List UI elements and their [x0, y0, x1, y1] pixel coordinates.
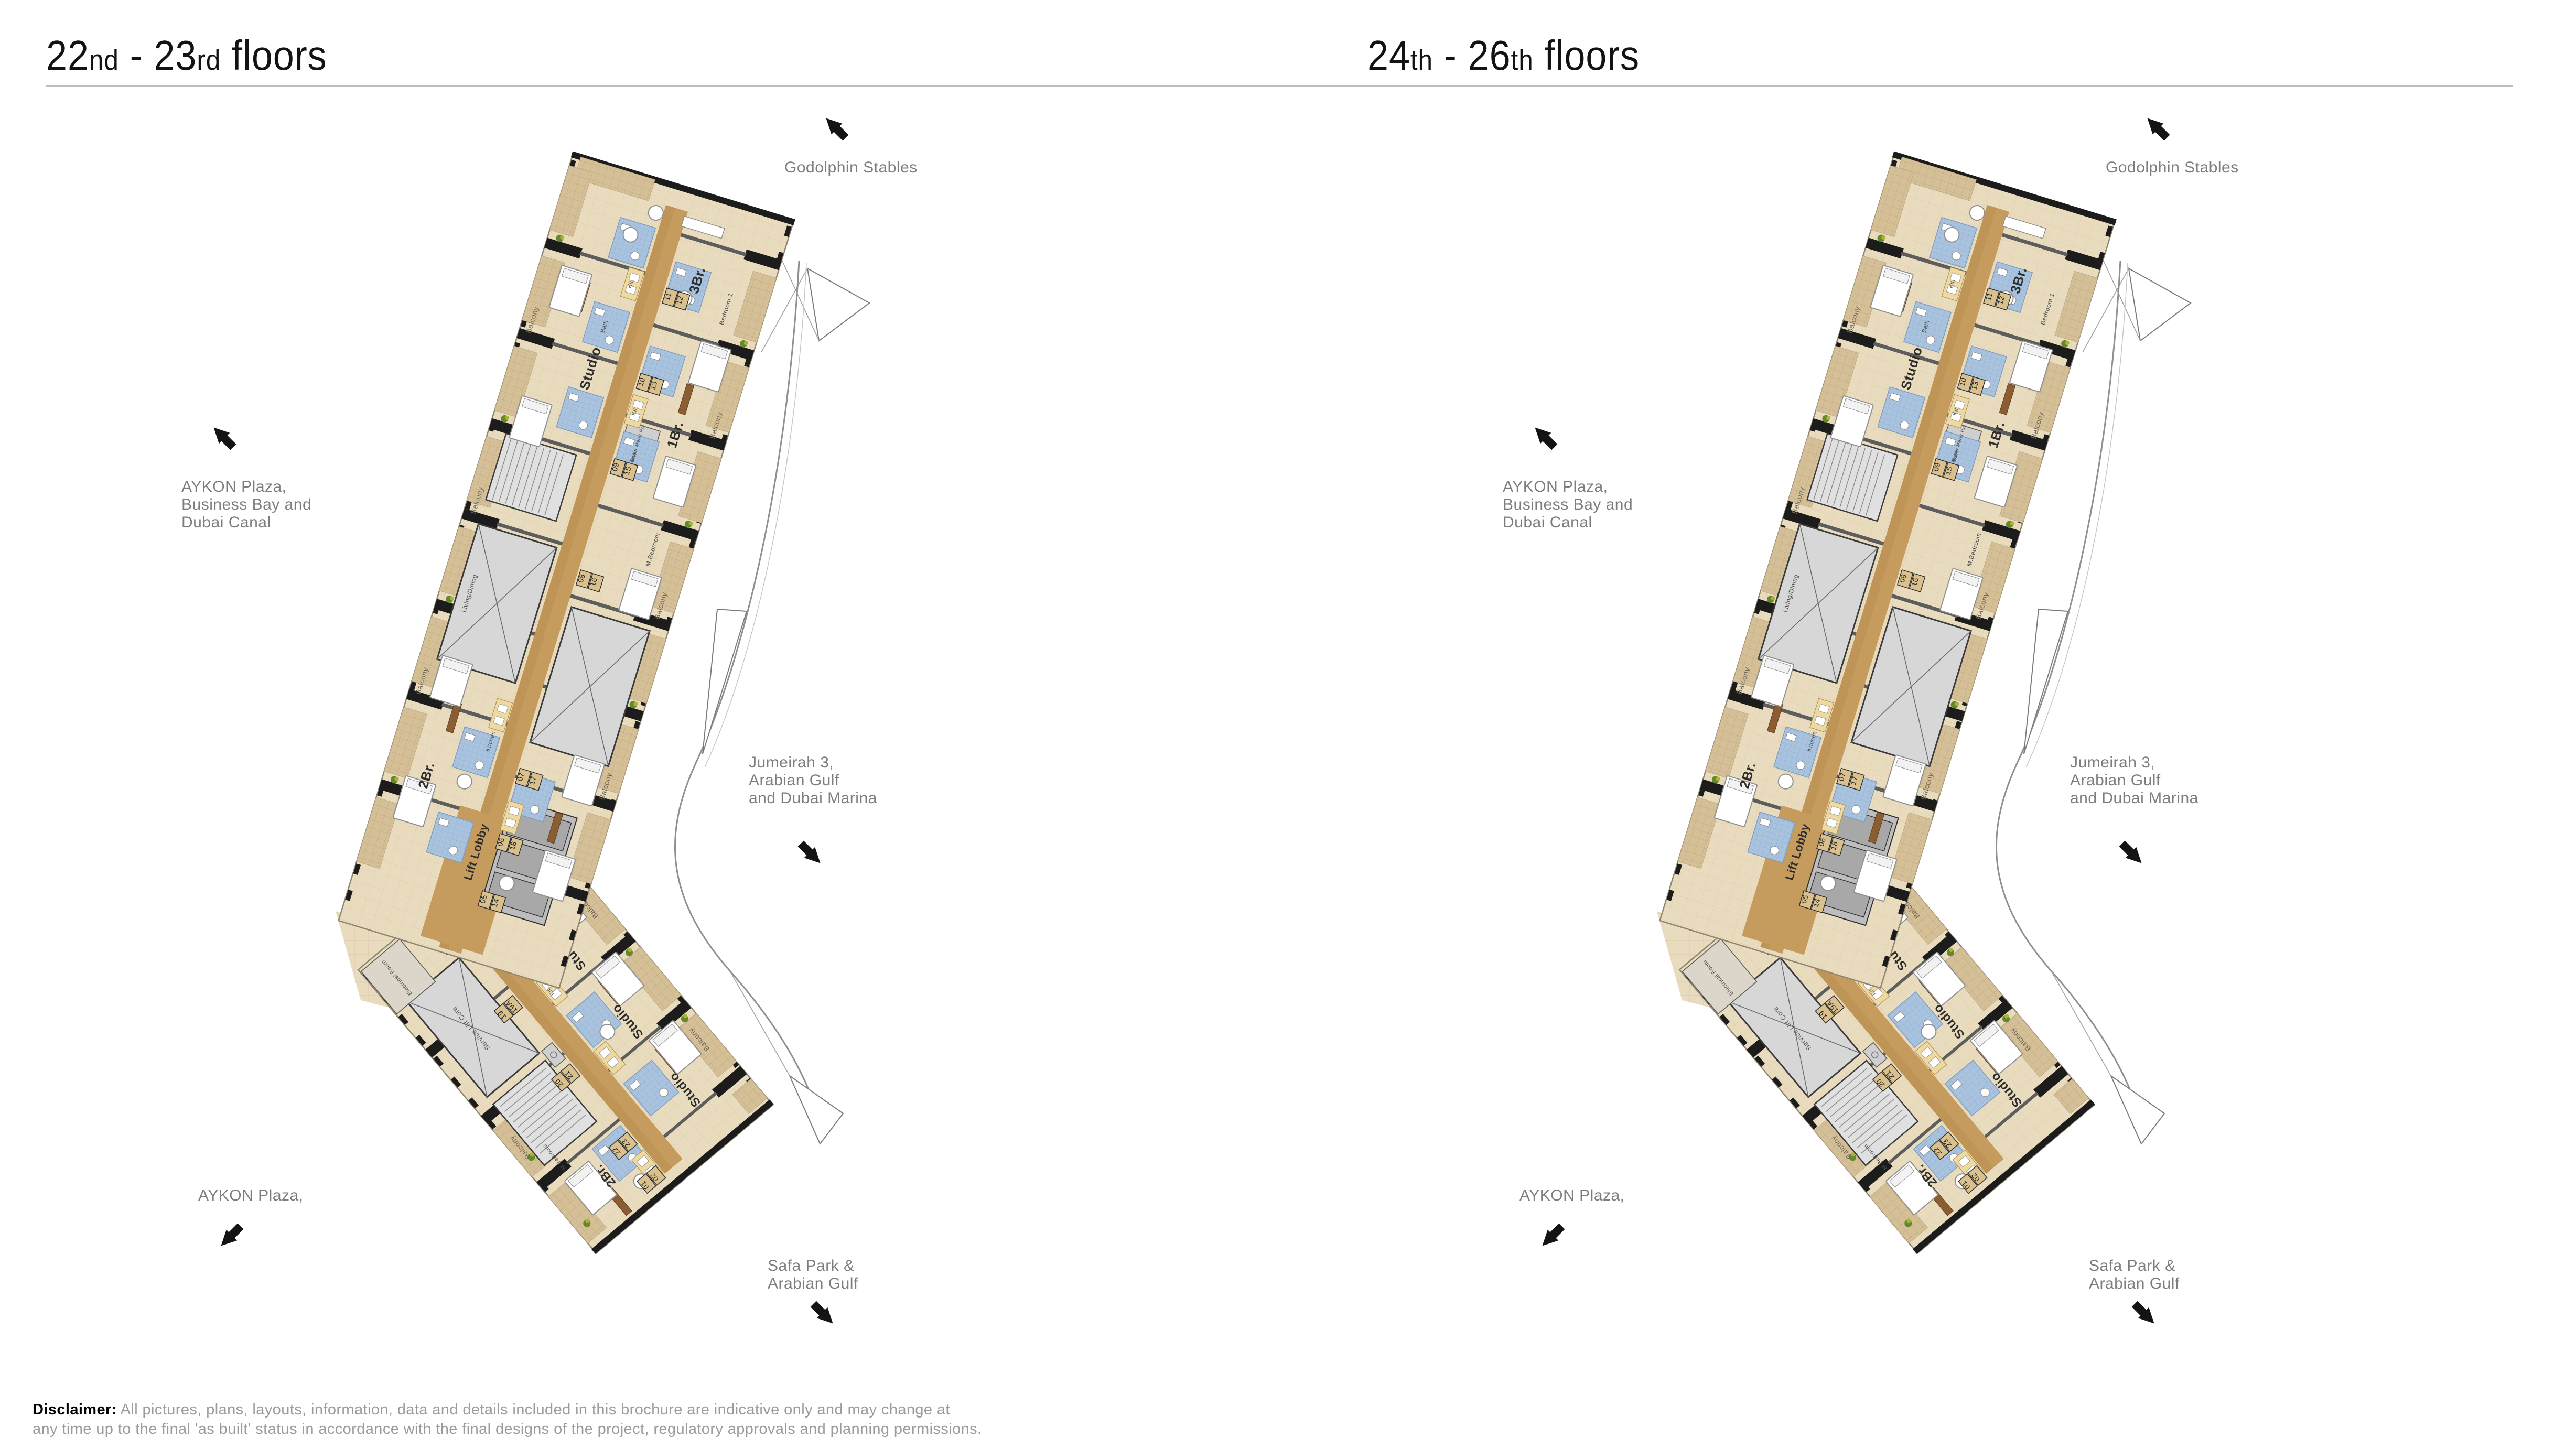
label-text: Godolphin Stables: [2106, 159, 2239, 176]
direction-label-godolphin: Godolphin Stables: [2106, 159, 2239, 177]
fin-needle: [703, 609, 747, 754]
label-text: Arabian Gulf: [749, 772, 839, 789]
arrow-godolphin-icon: [2143, 113, 2173, 145]
floor-plan-24-26: 04031919A202122230102StudioStudioStudio2…: [1321, 0, 2576, 1449]
label-text: Dubai Canal: [181, 514, 271, 531]
fin-needle: [2111, 1076, 2164, 1144]
disclaimer-line2: any time up to the final 'as built' stat…: [33, 1421, 982, 1437]
corridor-elbow: [1748, 898, 1794, 944]
label-text: AYKON Plaza,: [181, 478, 287, 495]
fin-spike: [807, 268, 869, 341]
disclaimer-label: Disclaimer:: [33, 1401, 117, 1418]
wing-upper: 11121013091508160717061805143Br.Studio1B…: [1659, 152, 2117, 989]
arrow-aykon-plaza-icon: [217, 1219, 246, 1251]
direction-label-aykon-plaza: AYKON Plaza,: [198, 1187, 304, 1205]
arrow-safa-park-icon: [807, 1297, 837, 1328]
label-text: AYKON Plaza,: [198, 1187, 304, 1204]
arrow-aykon-plaza-bb-icon: [1531, 423, 1560, 454]
brochure-page: { "page": { "background": "#ffffff", "ru…: [0, 0, 2576, 1449]
wing-upper: 11121013091508160717061805143Br.Studio1B…: [338, 152, 795, 989]
label-text: Business Bay and: [1503, 496, 1633, 513]
arrow-safa-park-icon: [2129, 1297, 2158, 1328]
label-text: Business Bay and: [181, 496, 311, 513]
direction-label-safa-park: Safa Park &Arabian Gulf: [2089, 1257, 2180, 1293]
label-text: Arabian Gulf: [768, 1275, 858, 1292]
label-text: and Dubai Marina: [2070, 790, 2198, 807]
direction-label-godolphin: Godolphin Stables: [784, 159, 918, 177]
title-rule: [46, 85, 2513, 87]
label-text: Arabian Gulf: [2089, 1275, 2180, 1292]
label-text: Jumeirah 3,: [2070, 754, 2155, 771]
label-text: Safa Park &: [2089, 1257, 2176, 1274]
fin-brace: [730, 971, 790, 1076]
fin-spike: [2129, 268, 2191, 341]
label-text: AYKON Plaza,: [1503, 478, 1608, 495]
disclaimer: Disclaimer: All pictures, plans, layouts…: [33, 1400, 1186, 1439]
label-text: Safa Park &: [768, 1257, 855, 1274]
label-text: Arabian Gulf: [2070, 772, 2161, 789]
disclaimer-line1: All pictures, plans, layouts, informatio…: [121, 1401, 950, 1418]
floor-plan-22-23: 04031919A202122230102StudioStudioStudio2…: [0, 0, 1288, 1449]
fin-needle: [790, 1076, 843, 1144]
fin-needle: [2024, 609, 2068, 754]
corridor-elbow: [427, 898, 473, 944]
direction-label-aykon-plaza-business-bay: AYKON Plaza,Business Bay andDubai Canal: [1503, 478, 1633, 532]
arrow-aykon-plaza-bb-icon: [210, 423, 239, 454]
panel-22-23: 22nd - 23rd floors 04031919A202122230102…: [0, 0, 1288, 1449]
label-text: Jumeirah 3,: [749, 754, 834, 771]
fin-brace: [2051, 971, 2111, 1076]
panel-24-26: 24th - 26th floors 04031919A202122230102…: [1321, 0, 2576, 1449]
label-text: and Dubai Marina: [749, 790, 877, 807]
label-text: Godolphin Stables: [784, 159, 918, 176]
arrow-jumeirah-icon: [795, 837, 824, 868]
arrow-godolphin-icon: [822, 113, 852, 145]
direction-label-jumeirah: Jumeirah 3,Arabian Gulfand Dubai Marina: [749, 754, 877, 807]
label-text: AYKON Plaza,: [1519, 1187, 1625, 1204]
arrow-aykon-plaza-icon: [1538, 1219, 1568, 1251]
label-text: Dubai Canal: [1503, 514, 1592, 531]
direction-label-jumeirah: Jumeirah 3,Arabian Gulfand Dubai Marina: [2070, 754, 2198, 807]
arrow-jumeirah-icon: [2116, 837, 2146, 868]
direction-label-aykon-plaza-business-bay: AYKON Plaza,Business Bay andDubai Canal: [181, 478, 311, 532]
direction-label-aykon-plaza: AYKON Plaza,: [1519, 1187, 1625, 1205]
direction-label-safa-park: Safa Park &Arabian Gulf: [768, 1257, 858, 1293]
